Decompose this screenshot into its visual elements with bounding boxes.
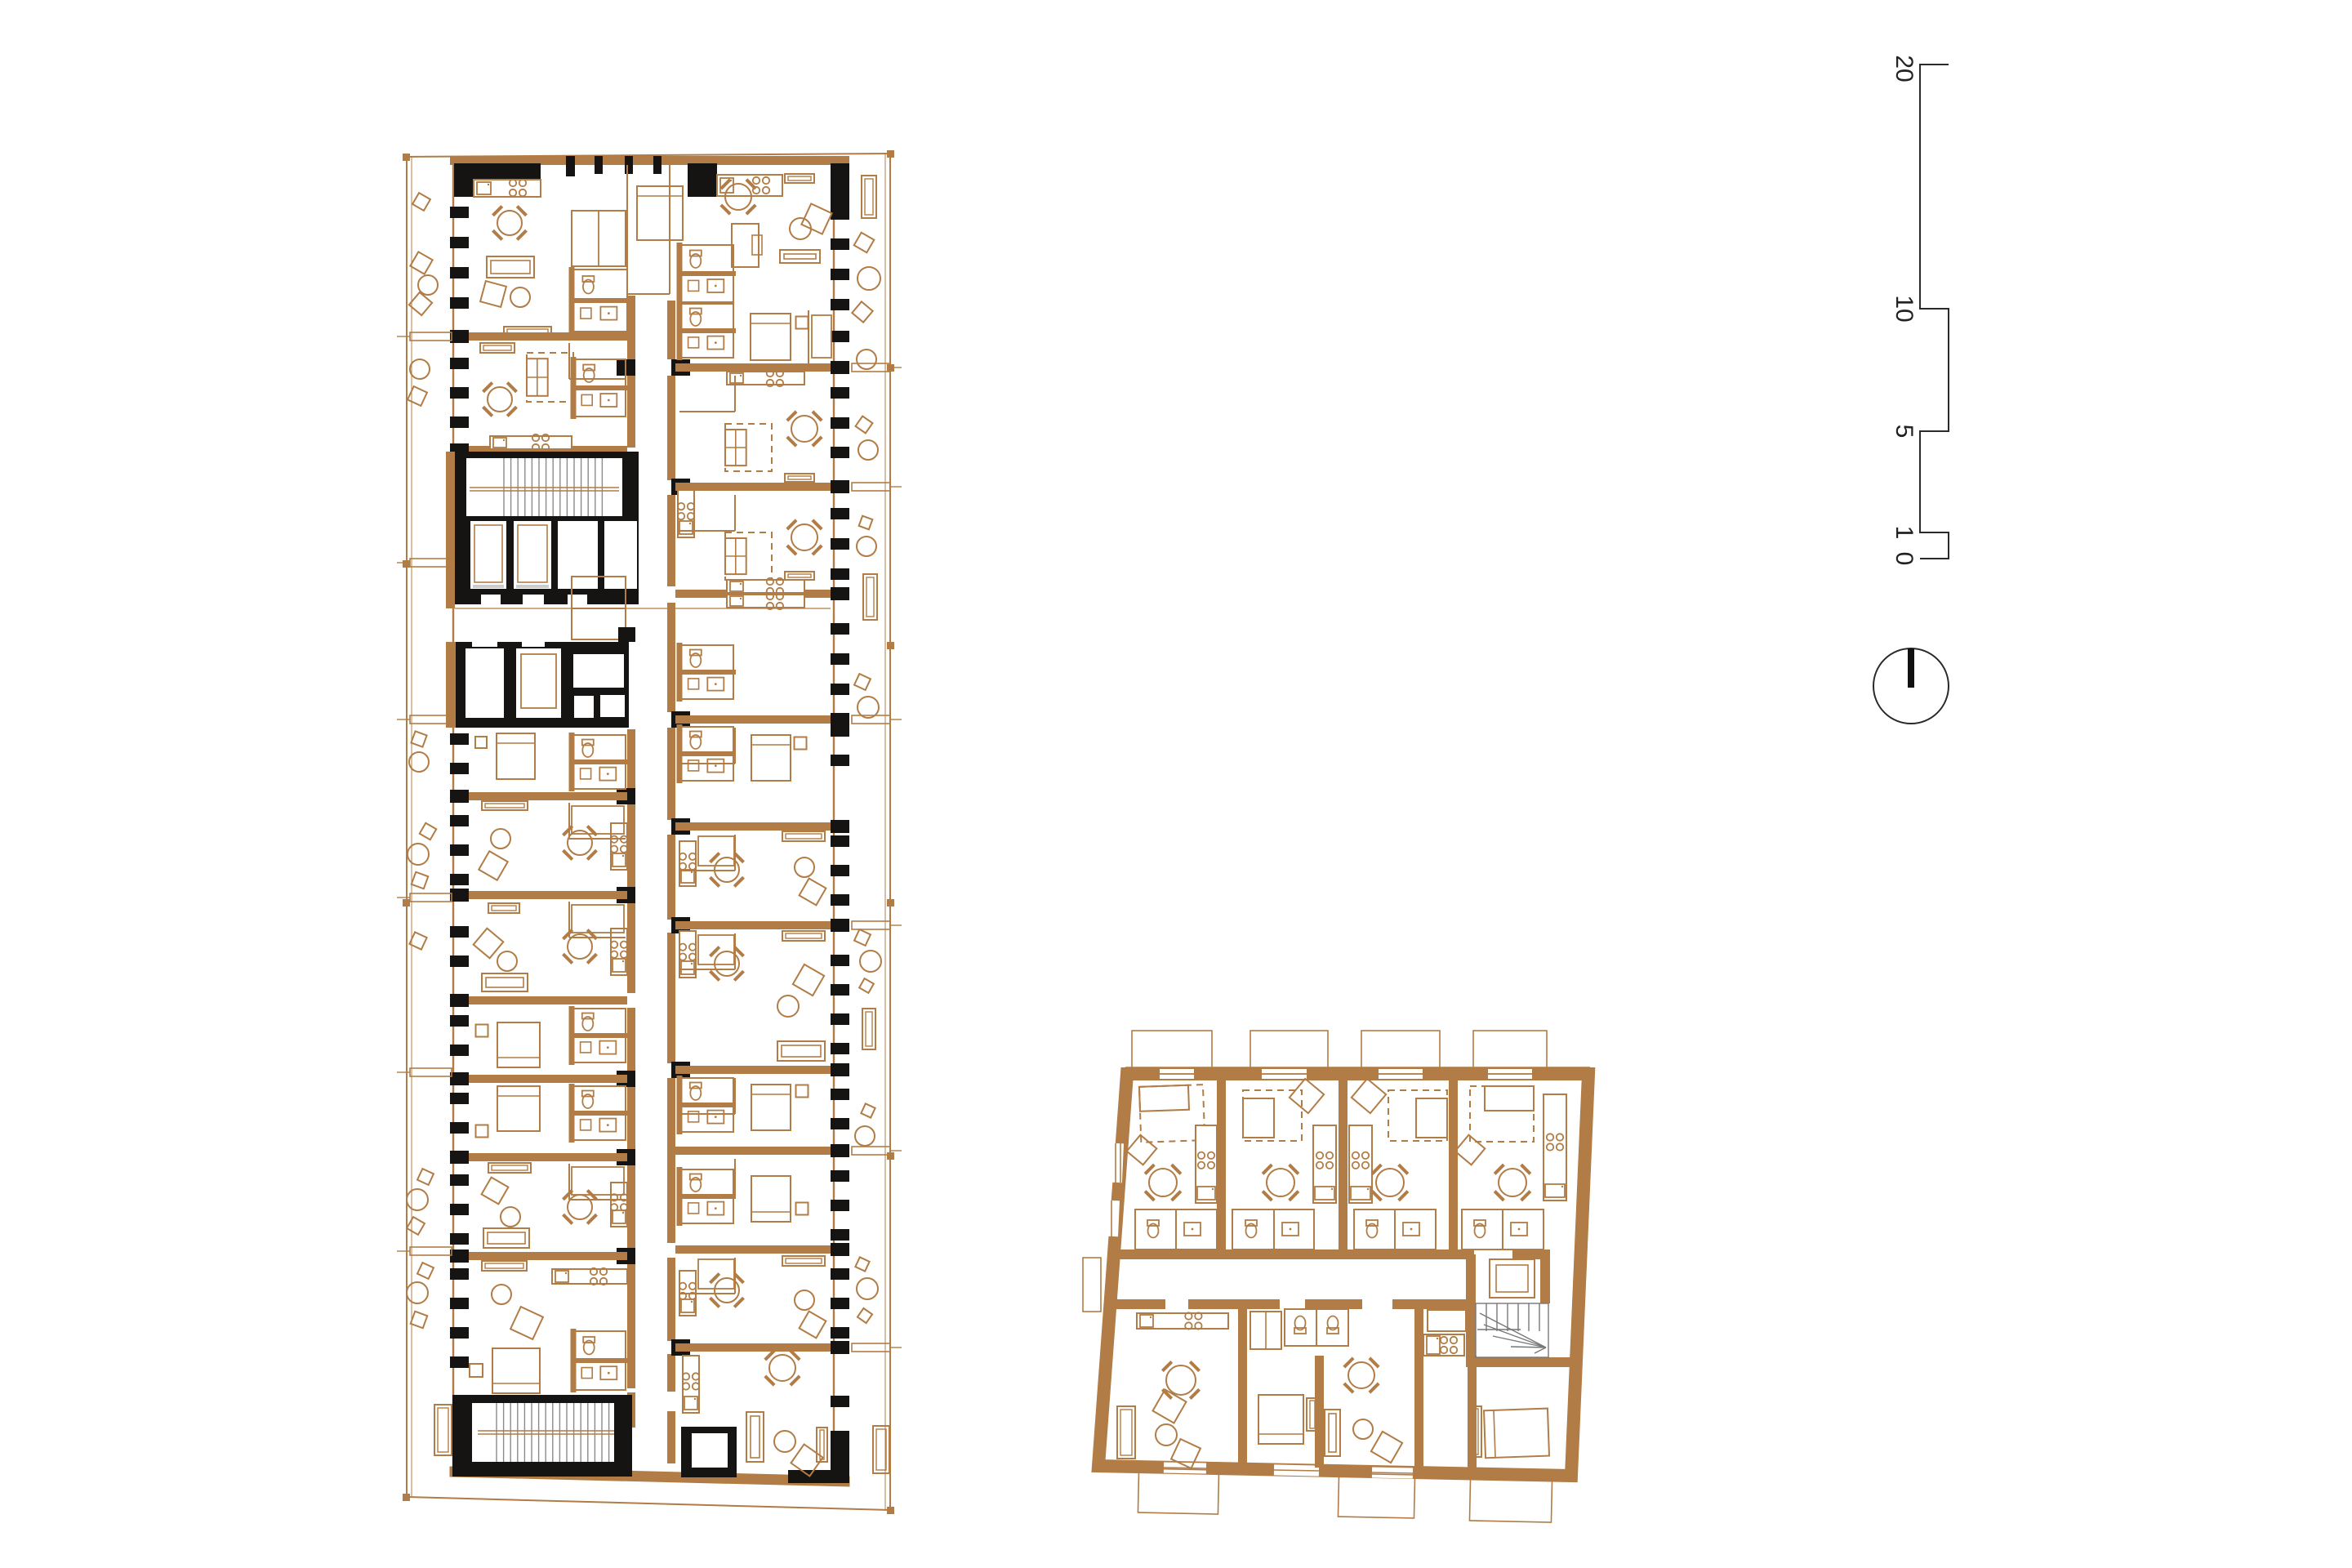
svg-text:1: 1	[1891, 526, 1918, 540]
svg-text:0: 0	[1891, 552, 1918, 566]
svg-text:10: 10	[1891, 295, 1918, 322]
svg-text:5: 5	[1891, 425, 1918, 439]
svg-text:20: 20	[1891, 55, 1918, 82]
